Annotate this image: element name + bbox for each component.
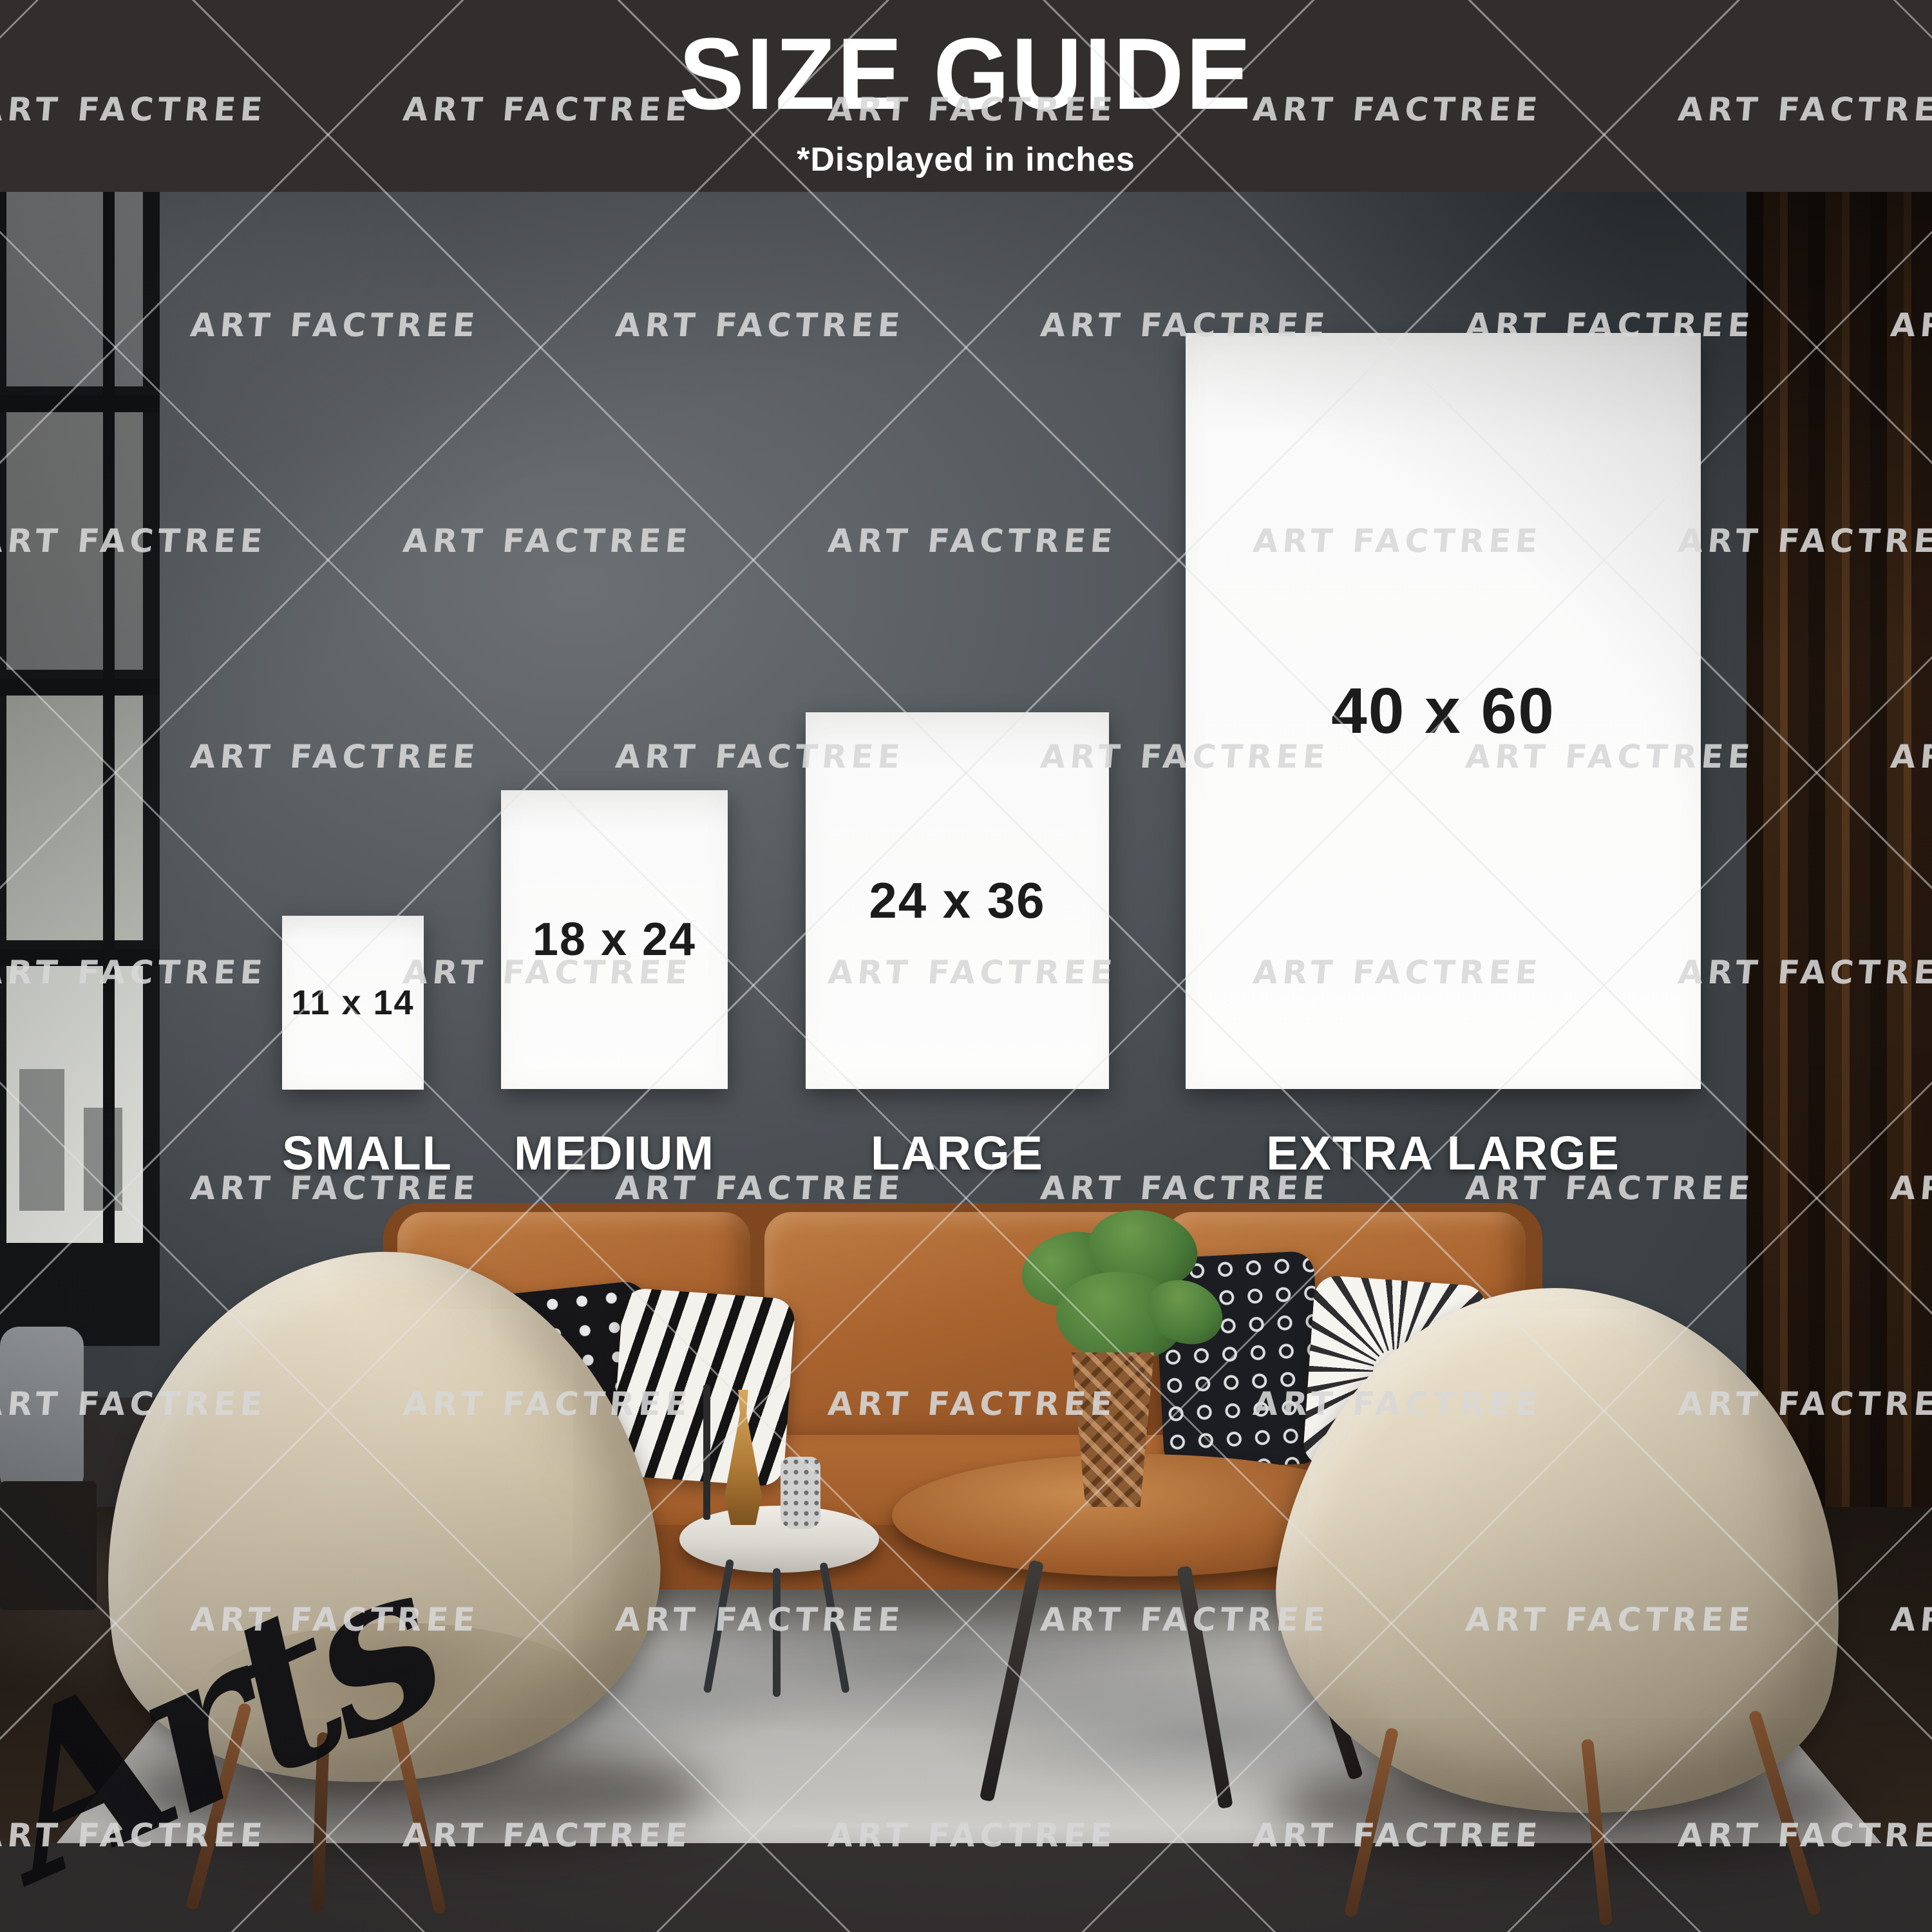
window-pane: [6, 966, 143, 1243]
bed-blanket: [0, 1327, 84, 1494]
window-mullion: [0, 679, 160, 696]
poster-large-size: 24 x 36: [869, 871, 1045, 930]
side-table-leg: [773, 1568, 781, 1697]
poster-medium-size: 18 x 24: [533, 913, 696, 966]
window-mullion: [103, 129, 115, 1243]
label-extra-large: EXTRA LARGE: [1186, 1126, 1701, 1180]
window-mullion: [0, 949, 160, 966]
bed-base: [0, 1481, 97, 1610]
size-guide-image: 11 x 14 18 x 24 24 x 36 40 x 60 SMALL ME…: [0, 0, 1932, 1932]
label-large: LARGE: [806, 1126, 1109, 1180]
window-mullion: [0, 395, 160, 412]
units-note: *Displayed in inches: [0, 140, 1932, 179]
poster-medium: 18 x 24: [501, 790, 728, 1089]
label-medium: MEDIUM: [501, 1126, 728, 1180]
small-vase: [781, 1457, 820, 1529]
candlestick: [703, 1385, 710, 1520]
window-pane: [6, 412, 143, 670]
poster-small: 11 x 14: [282, 916, 424, 1090]
poster-extra-large-size: 40 x 60: [1331, 674, 1555, 748]
poster-extra-large: 40 x 60: [1186, 333, 1701, 1089]
poster-small-size: 11 x 14: [291, 983, 414, 1023]
header-bar: SIZE GUIDE *Displayed in inches: [0, 0, 1932, 192]
poster-large: 24 x 36: [806, 712, 1109, 1089]
label-small: SMALL: [282, 1126, 424, 1180]
city-silhouette: [19, 1069, 64, 1211]
window: [0, 0, 160, 1346]
page-title: SIZE GUIDE: [0, 16, 1932, 133]
window-pane: [6, 696, 143, 940]
